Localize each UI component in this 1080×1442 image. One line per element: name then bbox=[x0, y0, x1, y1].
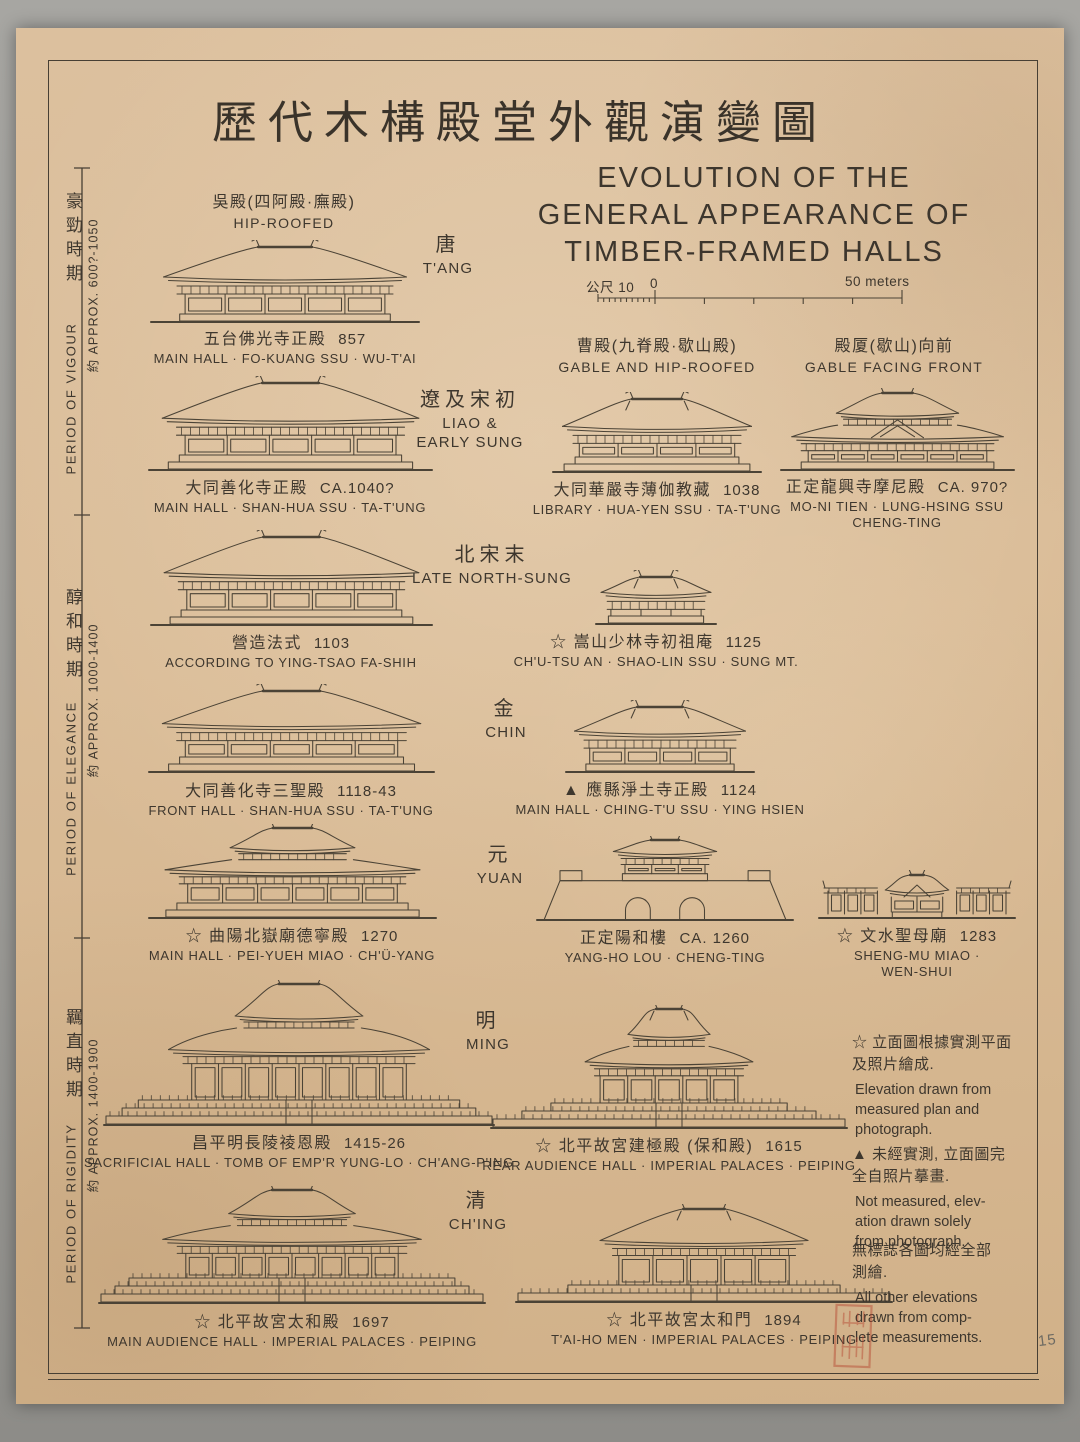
caption-ying-tsao: 營造法式1103ACCORDING TO YING-TSAO FA-SHIH bbox=[165, 629, 416, 671]
rooftype-hip: 吳殿(四阿殿·廡殿) HIP-ROOFED bbox=[213, 188, 356, 231]
caption-shan-hua-front: 大同善化寺三聖殿1118-43FRONT HALL · SHAN-HUA SSU… bbox=[148, 777, 433, 819]
caption-mo-ni-tien: 正定龍興寺摩尼殿CA. 970?MO-NI TIEN · LUNG-HSING … bbox=[786, 473, 1009, 531]
caption-pao-ho: ☆ 北平故宮建極殿 (保和殿)1615REAR AUDIENCE HALL · … bbox=[482, 1132, 855, 1174]
elevation-fo-kuang-ssu bbox=[150, 240, 420, 324]
scanned-plate: 歷代木構殿堂外觀演變圖 EVOLUTION OF THE GENERAL APP… bbox=[0, 0, 1080, 1442]
elevation-yang-ho-lou bbox=[536, 836, 794, 922]
scale-end-label: 50 meters bbox=[845, 274, 910, 289]
elevation-ching-tu-ssu bbox=[565, 700, 755, 774]
period-rigidity-en: PERIOD OF RIGIDITY bbox=[64, 1094, 79, 1314]
elevation-shan-hua-main bbox=[148, 376, 433, 472]
elevation-pao-ho-tien bbox=[490, 1005, 848, 1130]
caption-sheng-mu: ☆ 文水聖母廟1283SHENG-MU MIAO · WEN-SHUI bbox=[836, 922, 999, 980]
period-vigour-en: PERIOD OF VIGOUR bbox=[64, 289, 79, 509]
legend-full-measurement: 無標誌各圖均經全部 測繪.All other elevations drawn … bbox=[852, 1240, 1040, 1348]
plate-title-chinese: 歷代木構殿堂外觀演變圖 bbox=[212, 86, 828, 151]
legend-measured-plan: ☆ 立面圖根據實測平面 及照片繪成.Elevation drawn from m… bbox=[852, 1032, 1040, 1140]
pencil-page-number: 15 bbox=[1037, 1331, 1058, 1350]
period-vigour-zh: 豪勁時期 bbox=[60, 192, 85, 288]
caption-chang-ling: 昌平明長陵祾恩殿1415-26SACRIFICIAL HALL · TOMB O… bbox=[84, 1129, 514, 1171]
period-rigidity-zh: 羈直時期 bbox=[60, 1008, 85, 1104]
elevation-pei-yueh-miao bbox=[148, 824, 437, 920]
period-elegance-zh: 醇和時期 bbox=[60, 588, 85, 684]
caption-hua-yen-library: 大同華嚴寺薄伽教藏1038LIBRARY · HUA-YEN SSU · TA-… bbox=[533, 476, 782, 518]
dynasty-late-north-sung: 北宋末LATE NORTH-SUNG bbox=[412, 538, 572, 588]
elevation-chu-tsu-an bbox=[595, 570, 717, 626]
caption-fo-kuang-ssu: 五台佛光寺正殿857MAIN HALL · FO-KUANG SSU · WU-… bbox=[154, 325, 417, 367]
elevation-mo-ni-tien bbox=[780, 388, 1015, 472]
caption-ching-tu: ▲ 應縣淨土寺正殿1124MAIN HALL · CHING-T'U SSU ·… bbox=[515, 776, 804, 818]
scale-bar bbox=[585, 288, 915, 308]
caption-shan-hua-main: 大同善化寺正殿CA.1040?MAIN HALL · SHAN-HUA SSU … bbox=[154, 474, 426, 516]
period-elegance-approx: 約 APPROX. 1000-1400 bbox=[83, 591, 102, 811]
dynasty-yuan: 元YUAN bbox=[477, 838, 523, 888]
title-en-line1: EVOLUTION OF THE bbox=[538, 160, 971, 197]
elevation-shan-hua-front bbox=[148, 684, 435, 774]
rooftype-gable-hip: 曹殿(九脊殿·歇山殿) GABLE AND HIP-ROOFED bbox=[558, 332, 755, 375]
caption-yang-ho-lou: 正定陽和樓CA. 1260YANG-HO LOU · CHENG-TING bbox=[565, 924, 766, 966]
caption-chu-tsu-an: ☆ 嵩山少林寺初祖庵1125CH'U-TSU AN · SHAO-LIN SSU… bbox=[514, 628, 799, 670]
plate-title-english: EVOLUTION OF THE GENERAL APPEARANCE OF T… bbox=[538, 160, 971, 271]
legend-photo-only: ▲ 未經實測, 立面圖完 全自照片摹畫.Not measured, elev- … bbox=[852, 1144, 1040, 1252]
elevation-chang-ling bbox=[103, 980, 495, 1127]
elevation-sheng-mu-miao bbox=[818, 870, 1016, 920]
period-vigour-approx: 約 APPROX. 600?-1050 bbox=[83, 186, 102, 406]
rooftype-gable-front: 殿厦(歇山)向前 GABLE FACING FRONT bbox=[805, 332, 983, 375]
dynasty-tang: 唐T'ANG bbox=[423, 228, 474, 278]
border-frame-bottom-rule bbox=[48, 1379, 1039, 1380]
elevation-tai-ho-men bbox=[515, 1204, 893, 1304]
period-elegance-en: PERIOD OF ELEGANCE bbox=[64, 679, 79, 899]
dynasty-chin: 金CHIN bbox=[485, 692, 526, 742]
elevation-hua-yen-library bbox=[552, 392, 762, 474]
elevation-ying-tsao-fa-shih bbox=[150, 530, 433, 627]
elevation-tai-ho-tien bbox=[98, 1186, 486, 1305]
title-en-line3: TIMBER-FRAMED HALLS bbox=[538, 234, 971, 271]
caption-pei-yueh: ☆ 曲陽北嶽廟德寧殿1270MAIN HALL · PEI-YUEH MIAO … bbox=[149, 922, 435, 964]
red-seal-stamp bbox=[832, 1302, 874, 1369]
caption-tai-ho-tien: ☆ 北平故宮太和殿1697MAIN AUDIENCE HALL · IMPERI… bbox=[107, 1308, 477, 1350]
title-en-line2: GENERAL APPEARANCE OF bbox=[538, 197, 971, 234]
caption-tai-ho-men: ☆ 北平故宮太和門1894T'AI-HO MEN · IMPERIAL PALA… bbox=[551, 1306, 857, 1348]
